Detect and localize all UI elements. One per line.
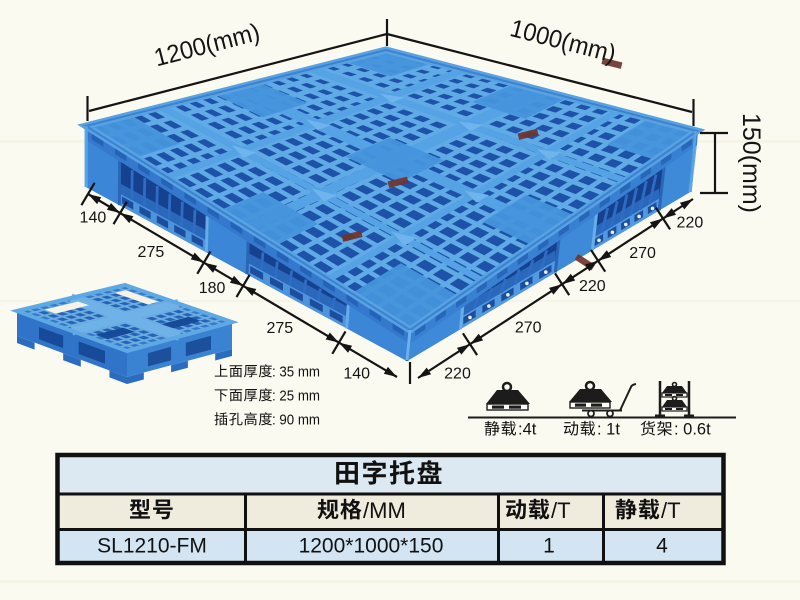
svg-text:/T: /T [551, 498, 571, 523]
svg-text:/MM: /MM [363, 498, 406, 523]
svg-text:220: 220 [579, 278, 606, 295]
svg-text:1200*1000*150: 1200*1000*150 [299, 535, 444, 558]
svg-text:: 0.6t: : 0.6t [674, 421, 711, 439]
svg-text:270: 270 [629, 245, 656, 262]
svg-text::4t: :4t [518, 421, 537, 439]
svg-text:220: 220 [444, 366, 471, 383]
svg-text:275: 275 [138, 244, 165, 261]
svg-text:4: 4 [656, 535, 668, 558]
svg-text:220: 220 [677, 214, 704, 231]
svg-text:1: 1 [543, 535, 555, 558]
svg-text:: 1t: : 1t [597, 421, 620, 439]
svg-text:140: 140 [80, 209, 107, 226]
svg-text:: 35 mm: : 35 mm [272, 364, 320, 381]
svg-text:180: 180 [199, 280, 226, 297]
svg-text:140: 140 [343, 366, 370, 383]
svg-text:SL1210-FM: SL1210-FM [97, 535, 207, 558]
svg-text:: 90 mm: : 90 mm [272, 412, 320, 429]
svg-text:: 25 mm: : 25 mm [272, 388, 320, 405]
svg-text:270: 270 [515, 320, 542, 337]
svg-text:275: 275 [266, 320, 293, 337]
svg-text:/T: /T [661, 498, 681, 523]
svg-text:150(mm): 150(mm) [737, 113, 765, 213]
